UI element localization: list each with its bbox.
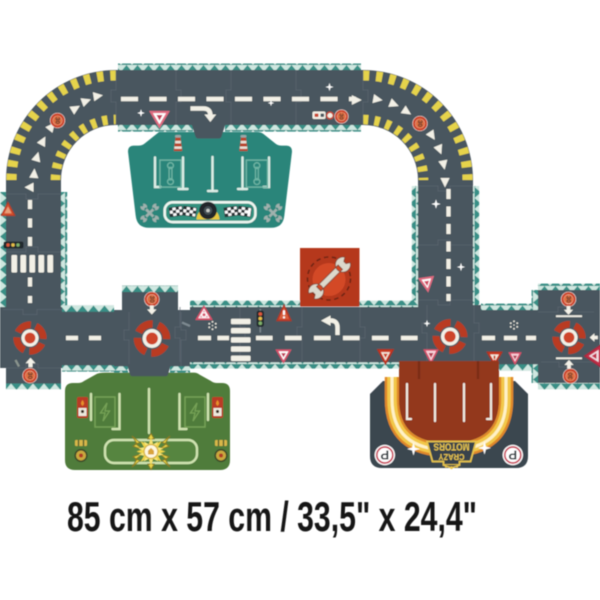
- svg-text:P: P: [508, 447, 517, 462]
- svg-text:85 cm x 57 cm / 33,5" x 24,4": 85 cm x 57 cm / 33,5" x 24,4": [67, 493, 477, 540]
- svg-text:MOTORS: MOTORS: [433, 441, 469, 452]
- svg-text:P: P: [380, 447, 389, 462]
- svg-text:CRAZY: CRAZY: [438, 452, 464, 461]
